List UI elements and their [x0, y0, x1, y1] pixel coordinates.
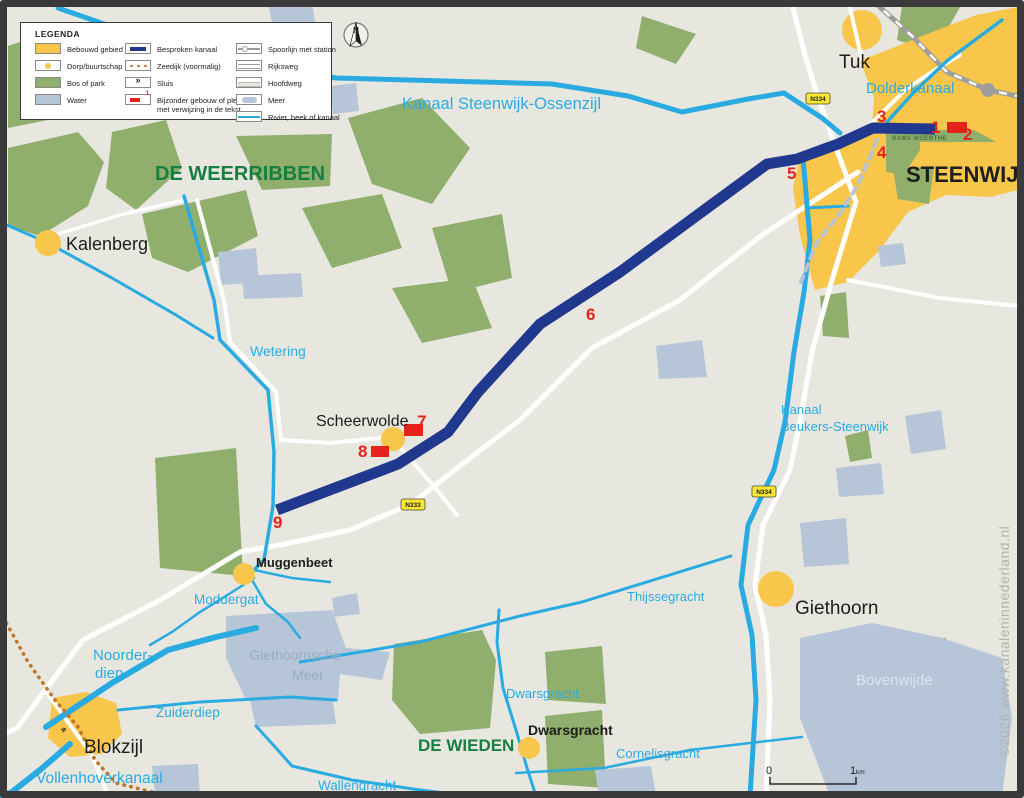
scale-unit: km [856, 769, 865, 776]
special-building-swatch: 1 [125, 94, 151, 105]
label-wieden: DE WIEDEN [418, 736, 514, 755]
legend-item-hoofdweg: Hoofdweg [236, 77, 340, 94]
water-swatch [35, 94, 61, 105]
legend-title: LEGENDA [35, 29, 80, 39]
marker-2: 2 [963, 125, 972, 144]
label-kanaal-beukers-1: Kanaal [781, 402, 822, 417]
label-giethoorn: Giethoorn [795, 598, 878, 619]
label-cornelisgracht: Cornelisgracht [616, 746, 700, 761]
discussed-canal-swatch [125, 43, 151, 54]
label-wetering: Wetering [250, 343, 306, 359]
map-page: Kanaal Steenwijk-Ossenzijl Dolderkanaal … [0, 0, 1024, 798]
label-tuk: Tuk [839, 52, 870, 73]
marker-9: 9 [273, 513, 282, 532]
tuk-area [842, 10, 882, 50]
label-giethoornsche-1: Giethoornsche [249, 647, 340, 663]
legend-item-spoorlijn: Spoorlijn met station [236, 43, 340, 60]
north-arrow-icon: N [344, 22, 368, 47]
marker-1: 1 [931, 118, 940, 137]
label-moddergat: Moddergat [194, 592, 259, 607]
marker-5: 5 [787, 164, 796, 183]
legend-item-meer: Meer [236, 94, 340, 111]
label-noorderdiep-2: diep [95, 665, 123, 682]
label-kalenberg: Kalenberg [66, 234, 148, 254]
watermark: ©2026 www.kanaleninnederland.nl [996, 526, 1012, 757]
built-area-swatch [35, 43, 61, 54]
label-vollenhoverkanaal: Vollenhoverkanaal [36, 770, 163, 787]
marker-3: 3 [877, 107, 886, 126]
legend-column-1: Bebouwd gebied Dorp/buurtschap Bos of pa… [35, 43, 123, 111]
kalenberg-dot [35, 230, 61, 256]
label-kanaal-beukers-2: Beukers-Steenwijk [781, 419, 889, 434]
label-bovenwijde: Bovenwijde [856, 672, 933, 689]
legend-item-bebouwd: Bebouwd gebied [35, 43, 123, 60]
label-dwarsgracht: Dwarsgracht [528, 722, 613, 738]
label-giethoornsche-2: Meer [292, 667, 324, 683]
label-kanaal-steenwijk-ossenzijl: Kanaal Steenwijk-Ossenzijl [402, 95, 601, 113]
legend-item-bos: Bos of park [35, 77, 123, 94]
seadike-swatch [125, 60, 151, 71]
label-noorderdiep-1: Noorder- [93, 647, 152, 664]
muggenbeet-dot [233, 563, 255, 585]
giethoorn-dot [758, 571, 794, 607]
label-blokzijl: Blokzijl [84, 737, 143, 758]
marker-4: 4 [877, 143, 887, 162]
dwarsgracht-dot [518, 737, 540, 759]
legend-item-rivier: Rivier, beek of kanaal [236, 111, 340, 128]
highway-swatch [236, 60, 262, 71]
label-weerribben: DE WEERRIBBEN [155, 163, 325, 185]
label-thijssegracht: Thijssegracht [627, 589, 705, 604]
label-dolderkanaal: Dolderkanaal [866, 80, 954, 97]
legend-item-rijksweg: Rijksweg [236, 60, 340, 77]
legend-column-2: Besproken kanaal Zeedijk (voormalig) » S… [125, 43, 241, 118]
river-swatch [236, 111, 262, 122]
lock-swatch: » [125, 77, 151, 88]
forest-swatch [35, 77, 61, 88]
building-8 [371, 446, 389, 457]
marker-8: 8 [358, 442, 367, 461]
label-wallengracht: Wallengracht [318, 778, 397, 793]
legend: LEGENDA Bebouwd gebied Dorp/buurtschap B… [20, 22, 332, 120]
village-swatch [35, 60, 61, 71]
sign-n333: N333 [405, 502, 421, 509]
legend-column-3: Spoorlijn met station Rijksweg Hoofdweg … [236, 43, 340, 128]
station-dot [981, 83, 995, 97]
railway-swatch [236, 43, 262, 54]
label-scheerwolde: Scheerwolde [316, 413, 409, 430]
scale-start: 0 [766, 765, 772, 777]
label-steenwijk: STEENWIJK [906, 162, 1024, 187]
north-label: N [353, 26, 359, 35]
legend-item-dorp: Dorp/buurtschap [35, 60, 123, 77]
lake-swatch [236, 94, 262, 105]
label-muggenbeet: Muggenbeet [256, 555, 333, 570]
marker-6: 6 [586, 305, 595, 324]
label-dwarsgracht-canal: Dwarsgracht [506, 686, 579, 701]
legend-item-bijzonder: 1 Bijzonder gebouw of plek met verwijzin… [125, 94, 241, 118]
main-road-swatch [236, 77, 262, 88]
marker-7: 7 [417, 412, 426, 431]
sign-n334-north: N334 [810, 96, 826, 103]
legend-item-sluis: » Sluis [125, 77, 241, 94]
legend-item-besproken: Besproken kanaal [125, 43, 241, 60]
label-zuiderdiep: Zuiderdiep [156, 705, 220, 720]
legend-item-water: Water [35, 94, 123, 111]
sign-n334-south: N334 [756, 489, 772, 496]
